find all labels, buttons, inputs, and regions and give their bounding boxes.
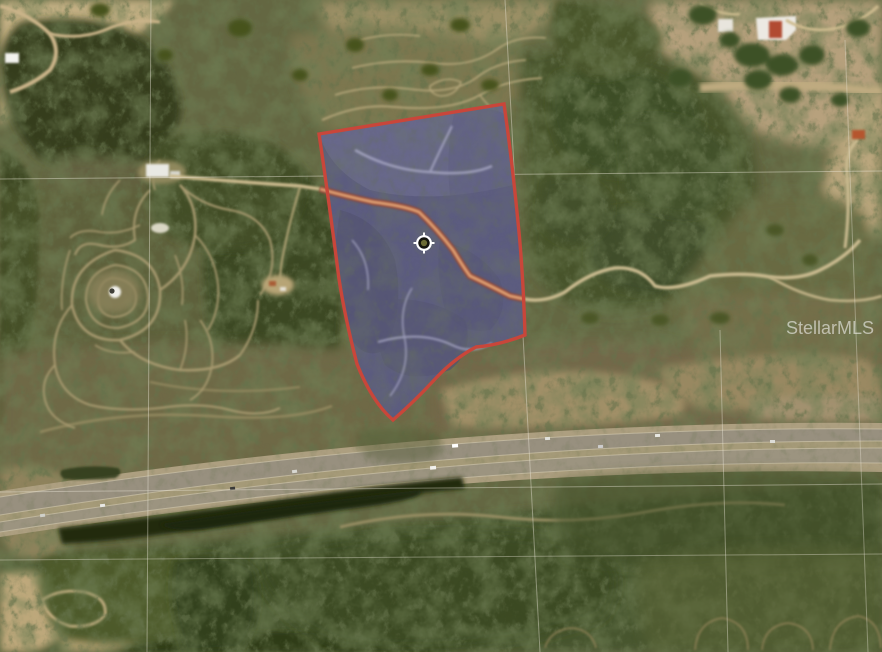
svg-text:StellarMLS: StellarMLS — [786, 318, 874, 338]
